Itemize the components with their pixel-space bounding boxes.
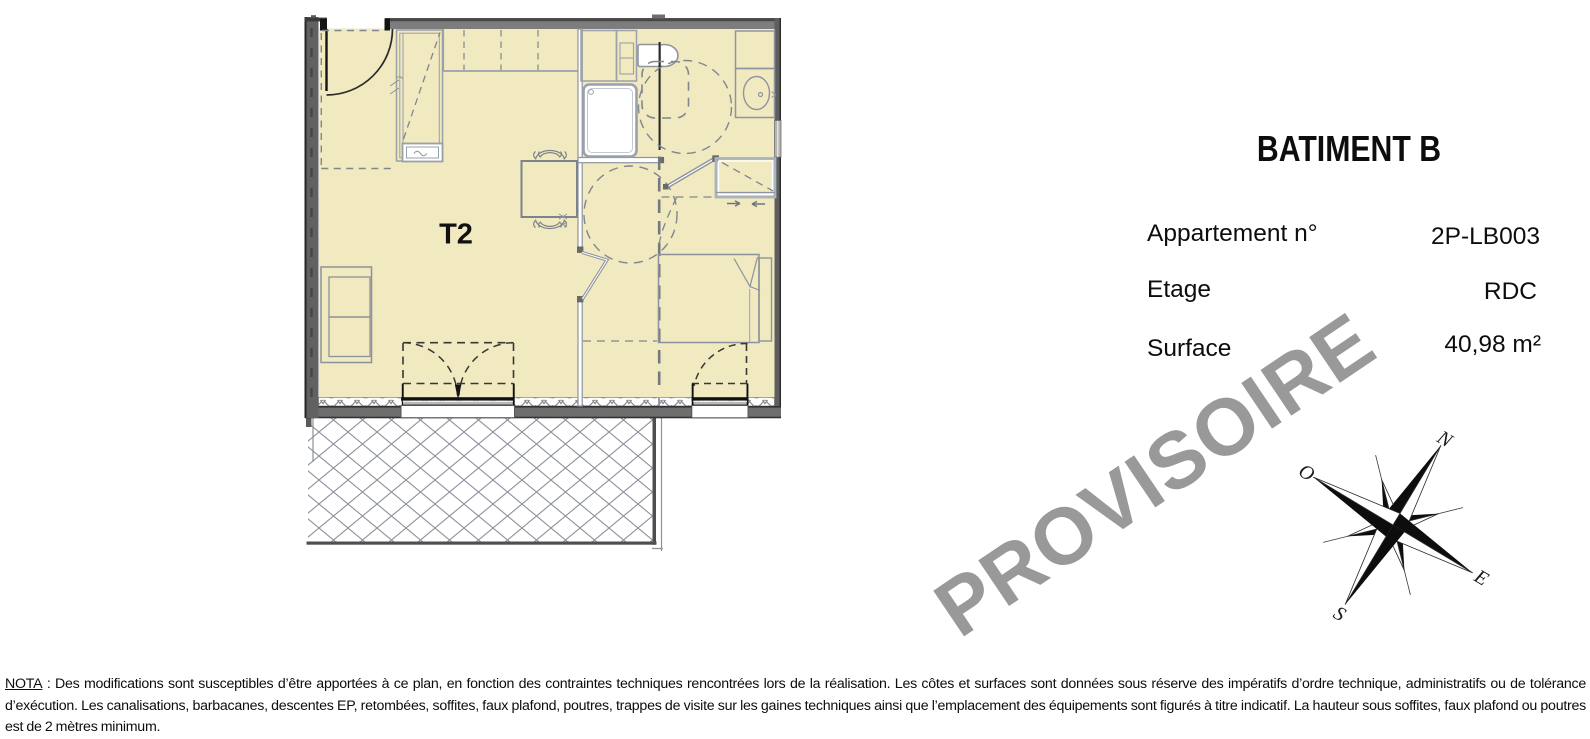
svg-text:S: S — [1329, 602, 1349, 626]
svg-text:N: N — [1432, 426, 1457, 453]
svg-text:E: E — [1470, 565, 1493, 591]
svg-text:O: O — [1295, 460, 1319, 486]
svg-text:T2: T2 — [439, 219, 473, 251]
